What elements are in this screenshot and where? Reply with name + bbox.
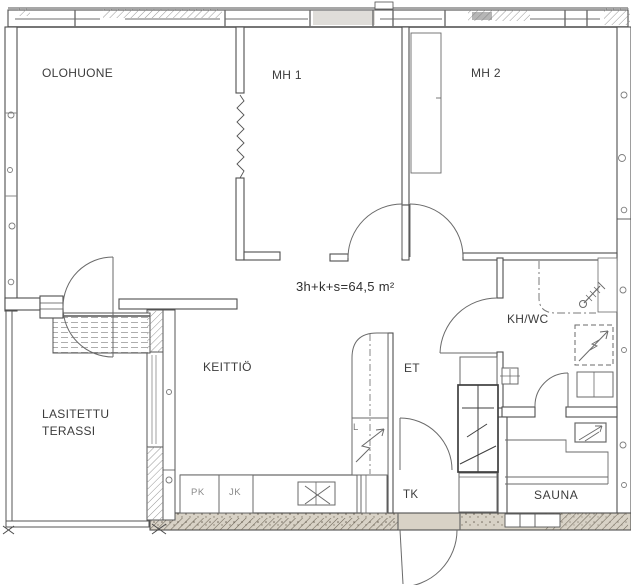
bedroom2-closet <box>411 33 441 173</box>
appliance-label-fridge: JK <box>229 487 241 498</box>
technical-cabinet <box>458 385 498 472</box>
room-label-vestibule: TK <box>403 489 418 501</box>
log-marks <box>5 64 627 488</box>
room-label-kitchen: KEITTIÖ <box>203 360 252 374</box>
bathroom-fixtures <box>500 258 617 397</box>
room-label-living-room: OLOHUONE <box>42 66 113 80</box>
room-label-bathroom: KH/WC <box>507 312 549 326</box>
sauna-window <box>505 514 560 527</box>
room-label-bedroom1: MH 1 <box>272 68 302 82</box>
exterior-walls <box>5 2 631 530</box>
wall-break-zigzag <box>237 95 244 178</box>
room-label-terrace-line2: TERASSI <box>42 424 95 438</box>
floor-plan: OLOHUONE MH 1 MH 2 3h+k+s=64,5 m² KEITTI… <box>0 0 631 585</box>
kitchen-fixtures <box>180 475 387 513</box>
room-label-sauna: SAUNA <box>534 488 578 502</box>
room-label-terrace-line1: LASITETTU <box>42 407 109 421</box>
appliance-label-electric-panel: L <box>353 422 359 433</box>
room-label-hall: ET <box>404 361 420 375</box>
wall-hatching <box>18 8 630 530</box>
electrical-cabinet <box>352 333 388 475</box>
appliance-label-freezer: PK <box>191 487 205 498</box>
sauna-fixtures <box>505 423 608 484</box>
area-label: 3h+k+s=64,5 m² <box>296 279 395 294</box>
room-label-bedroom2: MH 2 <box>471 66 501 80</box>
